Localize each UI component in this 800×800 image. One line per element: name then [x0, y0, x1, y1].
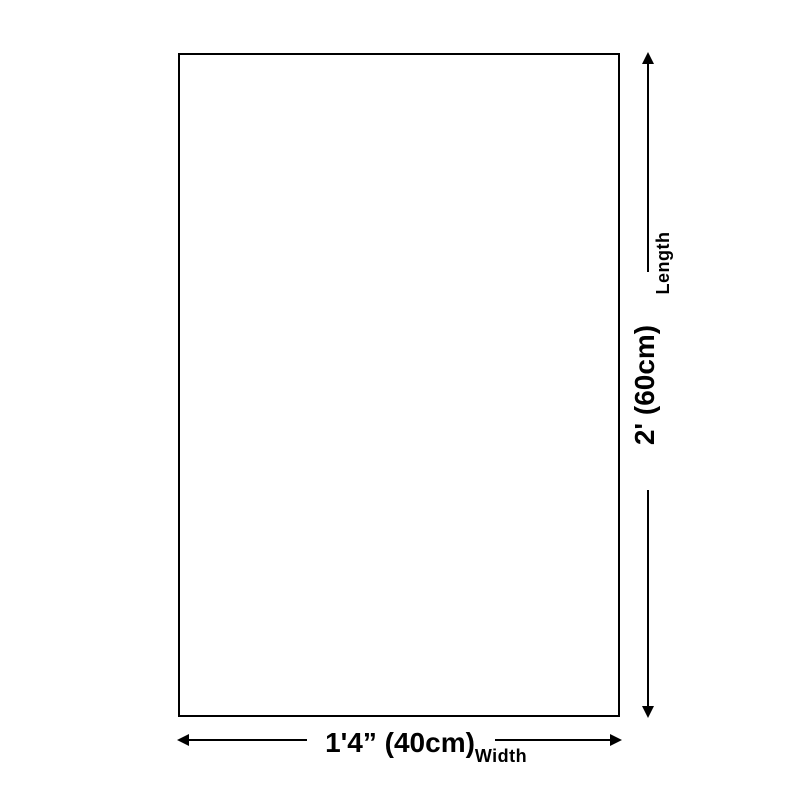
width-dim-line-right	[495, 739, 611, 741]
width-arrow-right-icon	[610, 734, 622, 746]
length-dim-line-bottom	[647, 490, 649, 707]
length-value-label: 2' (60cm)	[631, 325, 659, 445]
width-dim-line-left	[188, 739, 307, 741]
product-outline	[178, 53, 620, 717]
length-axis-label: Length	[654, 232, 672, 295]
length-dim-line-top	[647, 63, 649, 272]
size-diagram: Length 2' (60cm) 1'4” (40cm) Width	[0, 0, 800, 800]
width-axis-label: Width	[475, 747, 527, 765]
width-value-label: 1'4” (40cm)	[325, 729, 475, 757]
length-arrow-down-icon	[642, 706, 654, 718]
